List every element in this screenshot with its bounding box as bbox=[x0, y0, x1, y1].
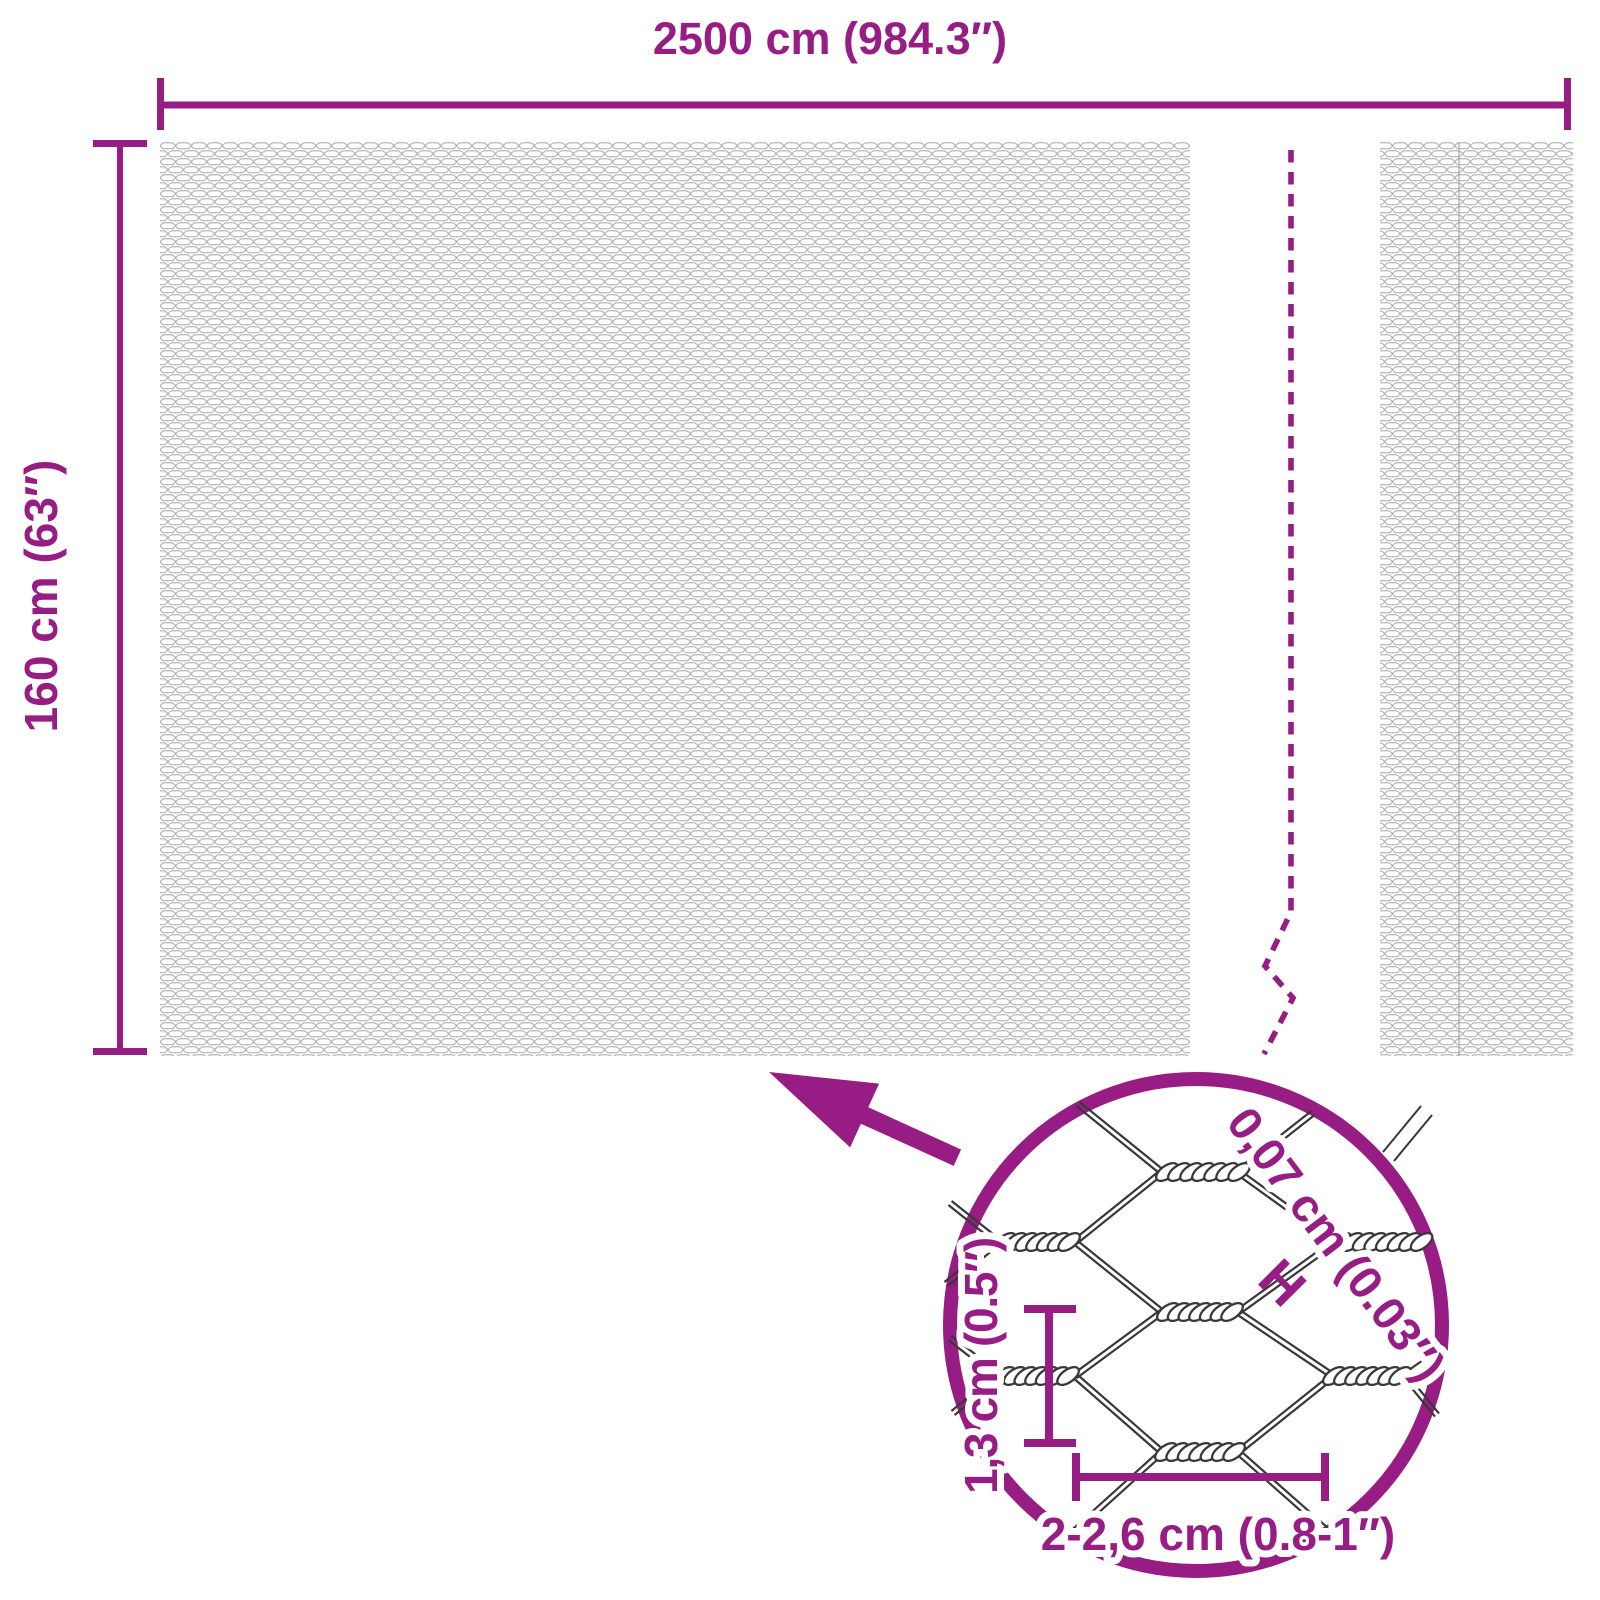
svg-text:2500 cm (984.3″): 2500 cm (984.3″) bbox=[653, 13, 1007, 64]
svg-text:1,3 cm (0.5″): 1,3 cm (0.5″) bbox=[955, 1238, 1007, 1494]
svg-text:2-2,6 cm (0.8-1″): 2-2,6 cm (0.8-1″) bbox=[1041, 1508, 1395, 1560]
svg-text:160 cm (63″): 160 cm (63″) bbox=[15, 460, 67, 733]
